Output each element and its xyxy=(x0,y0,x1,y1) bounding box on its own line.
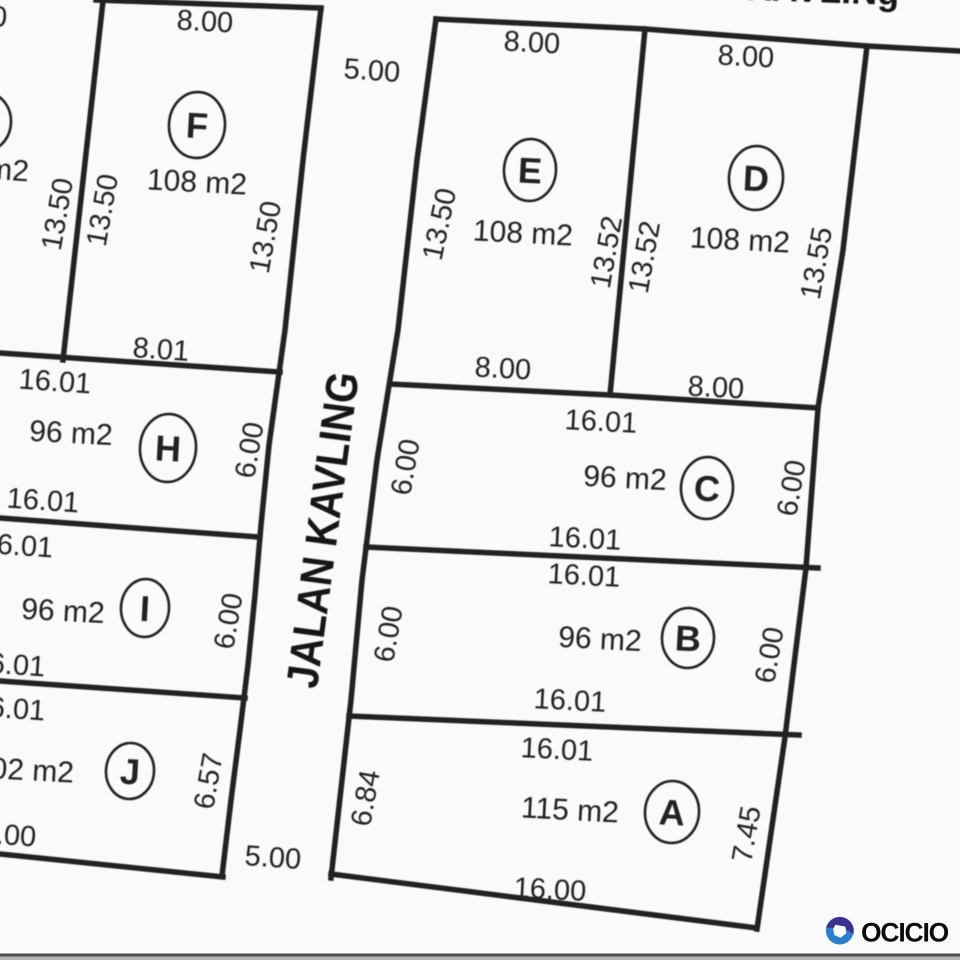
svg-text:16.01: 16.01 xyxy=(6,483,81,520)
svg-text:108 m2: 108 m2 xyxy=(146,163,248,201)
svg-text:H: H xyxy=(154,427,182,469)
svg-text:16.00: 16.00 xyxy=(513,872,587,908)
svg-text:5.00: 5.00 xyxy=(244,840,303,876)
svg-text:B: B xyxy=(674,617,702,659)
svg-text:16.01: 16.01 xyxy=(520,732,594,768)
svg-text:A: A xyxy=(658,791,686,833)
svg-text:16.01: 16.01 xyxy=(547,558,621,594)
svg-text:115 m2: 115 m2 xyxy=(520,791,619,829)
svg-text:16.01: 16.01 xyxy=(533,683,607,719)
svg-text:8.00: 8.00 xyxy=(474,352,532,387)
svg-text:OCICIO: OCICIO xyxy=(861,918,949,948)
svg-text:8.00: 8.00 xyxy=(717,40,775,75)
svg-text:108 m2: 108 m2 xyxy=(0,149,30,189)
svg-text:16.01: 16.01 xyxy=(18,364,93,401)
svg-text:J: J xyxy=(119,751,141,793)
svg-text:96 m2: 96 m2 xyxy=(28,415,113,452)
svg-text:D: D xyxy=(742,157,770,199)
svg-text:E: E xyxy=(517,149,543,191)
svg-text:108 m2: 108 m2 xyxy=(689,221,791,259)
svg-text:16.01: 16.01 xyxy=(564,404,638,440)
svg-text:102 m2: 102 m2 xyxy=(0,751,75,789)
svg-text:16.01: 16.01 xyxy=(0,528,54,565)
svg-text:C: C xyxy=(693,467,721,509)
svg-text:96 m2: 96 m2 xyxy=(582,460,667,497)
svg-text:5.00: 5.00 xyxy=(343,53,402,89)
svg-text:96 m2: 96 m2 xyxy=(20,593,105,630)
svg-text:8.00: 8.00 xyxy=(687,371,745,406)
svg-text:108 m2: 108 m2 xyxy=(472,214,574,252)
svg-text:F: F xyxy=(185,104,209,146)
svg-text:16.01: 16.01 xyxy=(0,647,46,684)
svg-text:I: I xyxy=(139,588,151,629)
svg-text:96 m2: 96 m2 xyxy=(557,621,642,658)
svg-text:8.01: 8.01 xyxy=(132,332,191,368)
svg-text:8.00: 8.00 xyxy=(176,5,234,40)
svg-text:16.00: 16.00 xyxy=(0,817,37,854)
svg-text:8.00: 8.00 xyxy=(503,26,561,61)
svg-text:16.01: 16.01 xyxy=(548,521,622,557)
svg-text:16.01: 16.01 xyxy=(0,691,46,728)
